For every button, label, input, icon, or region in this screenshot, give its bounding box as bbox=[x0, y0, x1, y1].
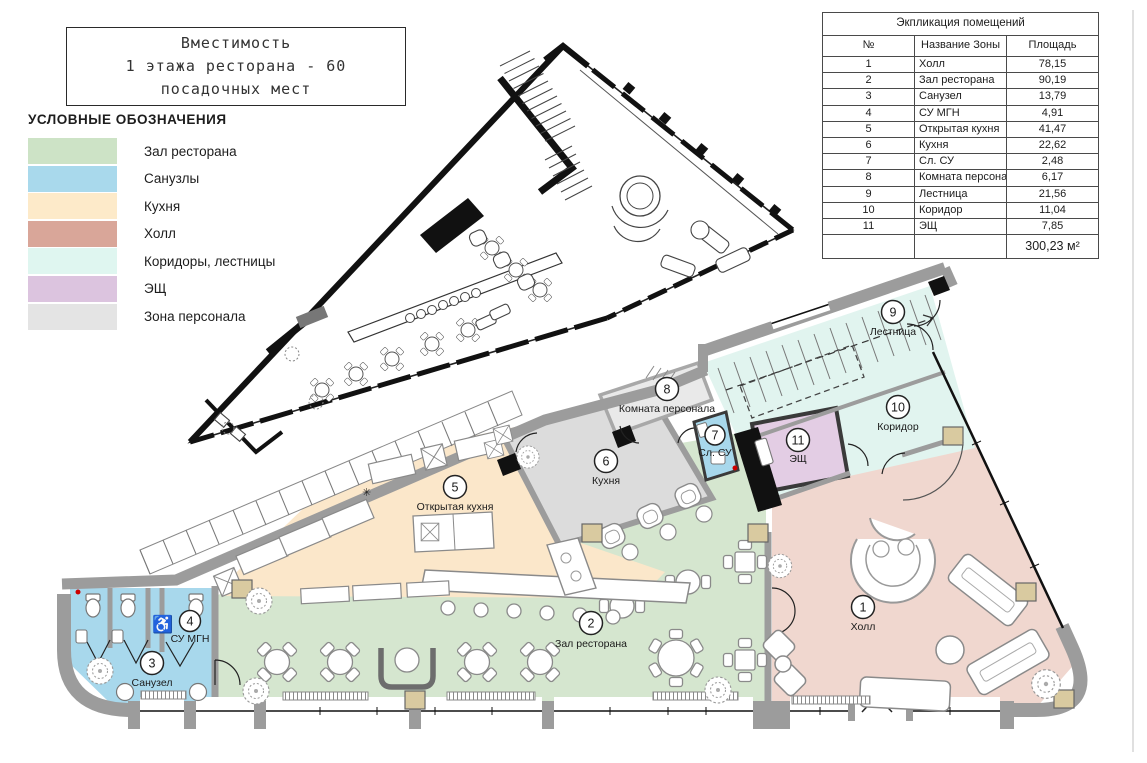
svg-text:СУ МГН: СУ МГН bbox=[171, 633, 210, 645]
title-box: Вместимость 1 этажа ресторана - 60 посад… bbox=[66, 27, 406, 106]
col-header-num: № bbox=[823, 36, 915, 57]
svg-text:Холл: Холл bbox=[851, 621, 876, 633]
drawing-sheet: ✳ ♿ bbox=[0, 0, 1147, 763]
svg-text:3: 3 bbox=[149, 657, 156, 671]
legend-item-kitchen: Кухня bbox=[28, 193, 275, 219]
legend-item-esh: ЭЩ bbox=[28, 276, 275, 302]
legend-title: УСЛОВНЫЕ ОБОЗНАЧЕНИЯ bbox=[28, 112, 275, 127]
table-row: 5 Открытая кухня 41,47 bbox=[823, 121, 1099, 137]
alarm-marker bbox=[733, 466, 738, 471]
title-line: посадочных мест bbox=[161, 78, 311, 101]
svg-text:2: 2 bbox=[588, 617, 595, 631]
table-row: 6 Кухня 22,62 bbox=[823, 138, 1099, 154]
table-row: 8 Комната персонала 6,17 bbox=[823, 170, 1099, 186]
svg-text:Коридор: Коридор bbox=[877, 421, 919, 433]
svg-text:4: 4 bbox=[187, 615, 194, 629]
legend-label: Холл bbox=[144, 226, 176, 241]
legend-swatch bbox=[28, 276, 117, 302]
legend-swatch bbox=[28, 304, 117, 330]
legend-label: Зал ресторана bbox=[144, 144, 237, 159]
room-label-11: 11 ЭЩ bbox=[787, 429, 810, 466]
table-row: 3 Санузел 13,79 bbox=[823, 89, 1099, 105]
svg-text:Кухня: Кухня bbox=[592, 475, 620, 487]
table-row: 9 Лестница 21,56 bbox=[823, 186, 1099, 202]
legend-item-hall: Холл bbox=[28, 221, 275, 247]
col-header-area: Площадь bbox=[1007, 36, 1099, 57]
alarm-marker bbox=[76, 590, 81, 595]
svg-text:7: 7 bbox=[712, 429, 719, 443]
table-row: 2 Зал ресторана 90,19 bbox=[823, 73, 1099, 89]
table-row: 4 СУ МГН 4,91 bbox=[823, 105, 1099, 121]
svg-text:1: 1 bbox=[860, 601, 867, 615]
legend-swatch bbox=[28, 166, 117, 192]
legend-swatch bbox=[28, 221, 117, 247]
legend-label: Кухня bbox=[144, 199, 180, 214]
svg-text:Лестница: Лестница bbox=[870, 326, 916, 338]
legend-item-staff: Зона персонала bbox=[28, 304, 275, 330]
legend-swatch bbox=[28, 193, 117, 219]
svg-text:Зал ресторана: Зал ресторана bbox=[555, 638, 627, 650]
table-row: 10 Коридор 11,04 bbox=[823, 202, 1099, 218]
svg-text:Комната персонала: Комната персонала bbox=[619, 403, 715, 415]
svg-text:ЭЩ: ЭЩ bbox=[789, 453, 807, 465]
room-label-6: 6 Кухня bbox=[592, 450, 620, 488]
legend-label: Коридоры, лестницы bbox=[144, 254, 275, 269]
col-header-name: Название Зоны bbox=[915, 36, 1007, 57]
table-row: 7 Сл. СУ 2,48 bbox=[823, 154, 1099, 170]
title-line: 1 этажа ресторана - 60 bbox=[126, 55, 347, 78]
total-area: 300,23 м² bbox=[1007, 235, 1099, 259]
svg-text:10: 10 bbox=[891, 401, 905, 415]
table-row: 11 ЭЩ 7,85 bbox=[823, 219, 1099, 235]
legend-label: Санузлы bbox=[144, 171, 199, 186]
fridge-symbol: ✳ bbox=[362, 487, 371, 499]
wheelchair-icon: ♿ bbox=[152, 614, 173, 634]
svg-text:5: 5 bbox=[452, 481, 459, 495]
svg-text:8: 8 bbox=[664, 383, 671, 397]
legend-item-corridors: Коридоры, лестницы bbox=[28, 248, 275, 274]
svg-text:Санузел: Санузел bbox=[132, 677, 173, 689]
legend-item-restaurant: Зал ресторана bbox=[28, 138, 275, 164]
room-label-1: 1 Холл bbox=[851, 596, 876, 634]
svg-text:11: 11 bbox=[792, 434, 805, 448]
table-row: 1 Холл 78,15 bbox=[823, 57, 1099, 73]
legend-swatch bbox=[28, 248, 117, 274]
legend-swatch bbox=[28, 138, 117, 164]
svg-text:9: 9 bbox=[890, 306, 897, 320]
explication-table: Экпликация помещений № Название Зоны Пло… bbox=[822, 12, 1099, 259]
table-header-row: № Название Зоны Площадь bbox=[823, 36, 1099, 57]
table-title: Экпликация помещений bbox=[823, 13, 1099, 36]
svg-text:Открытая кухня: Открытая кухня bbox=[417, 501, 494, 513]
table-total-row: 300,23 м² bbox=[823, 235, 1099, 259]
svg-text:6: 6 bbox=[603, 455, 610, 469]
legend-label: ЭЩ bbox=[144, 281, 166, 296]
svg-text:Сл. СУ: Сл. СУ bbox=[698, 447, 732, 459]
legend: УСЛОВНЫЕ ОБОЗНАЧЕНИЯ Зал ресторана Сануз… bbox=[28, 112, 275, 331]
title-line: Вместимость bbox=[181, 32, 291, 55]
legend-item-wc: Санузлы bbox=[28, 166, 275, 192]
legend-label: Зона персонала bbox=[144, 309, 245, 324]
